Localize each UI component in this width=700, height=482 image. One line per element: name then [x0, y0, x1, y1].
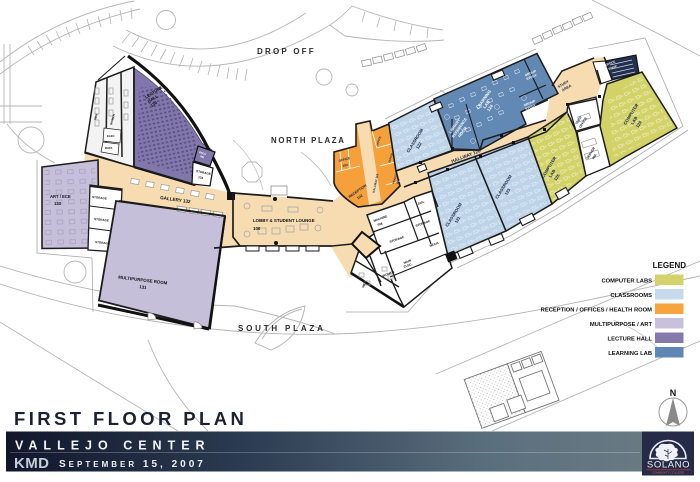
svg-text:MULTIPURPOSE / ART: MULTIPURPOSE / ART — [590, 322, 653, 328]
svg-text:CLASSROOMS: CLASSROOMS — [610, 293, 652, 299]
svg-text:KMD: KMD — [14, 455, 49, 472]
svg-text:SOUTH PLAZA: SOUTH PLAZA — [238, 324, 326, 333]
svg-text:LECTURE HALL: LECTURE HALL — [608, 337, 653, 343]
svg-text:LEGEND: LEGEND — [653, 261, 687, 270]
svg-text:FIRST FLOOR PLAN: FIRST FLOOR PLAN — [14, 408, 247, 429]
svg-text:ART / ECE: ART / ECE — [50, 194, 71, 199]
svg-text:COMMUNITY COLLEGE: COMMUNITY COLLEGE — [652, 471, 684, 475]
svg-text:RECEPTION / OFFICES / HEALTH R: RECEPTION / OFFICES / HEALTH ROOM — [541, 308, 652, 314]
svg-text:131: 131 — [139, 284, 147, 290]
svg-text:VALLEJO CENTER: VALLEJO CENTER — [15, 439, 211, 453]
svg-text:DROP OFF: DROP OFF — [257, 47, 316, 56]
svg-text:LOBBY & STUDENT LOUNGE: LOBBY & STUDENT LOUNGE — [253, 218, 315, 223]
svg-text:COMPUTER LABS: COMPUTER LABS — [601, 279, 652, 285]
svg-text:LEARNING LAB: LEARNING LAB — [608, 351, 652, 357]
svg-text:NORTH PLAZA: NORTH PLAZA — [271, 136, 346, 145]
svg-text:133: 133 — [54, 201, 62, 206]
svg-text:ELEC: ELEC — [107, 134, 114, 138]
svg-text:DATA: DATA — [105, 146, 112, 150]
svg-text:N: N — [670, 388, 677, 398]
svg-text:SEPTEMBER 15, 2007: SEPTEMBER 15, 2007 — [59, 459, 206, 470]
svg-text:100: 100 — [253, 226, 261, 231]
svg-text:SOLANO: SOLANO — [647, 460, 690, 471]
